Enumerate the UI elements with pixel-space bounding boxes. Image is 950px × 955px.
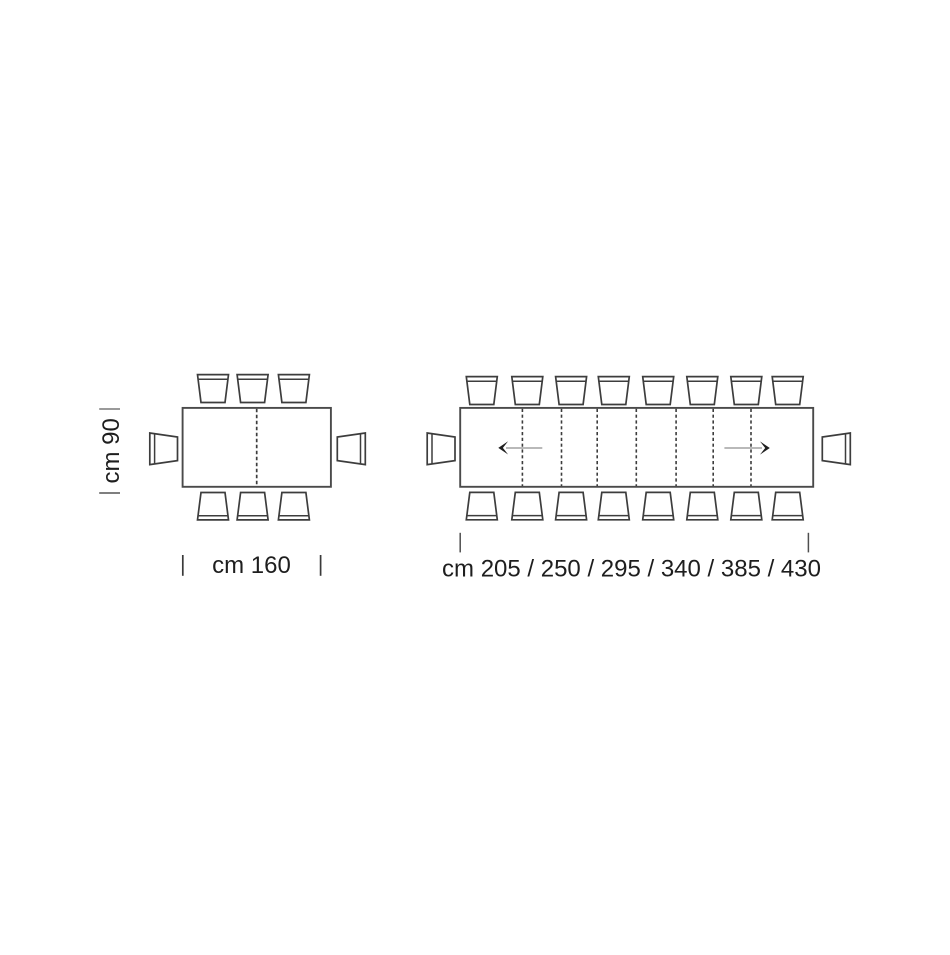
svg-text:cm 160: cm 160 (212, 552, 291, 579)
svg-text:cm 205 / 250 / 295 / 340 / 385: cm 205 / 250 / 295 / 340 / 385 / 430 (442, 556, 821, 583)
svg-text:cm 90: cm 90 (98, 418, 125, 483)
